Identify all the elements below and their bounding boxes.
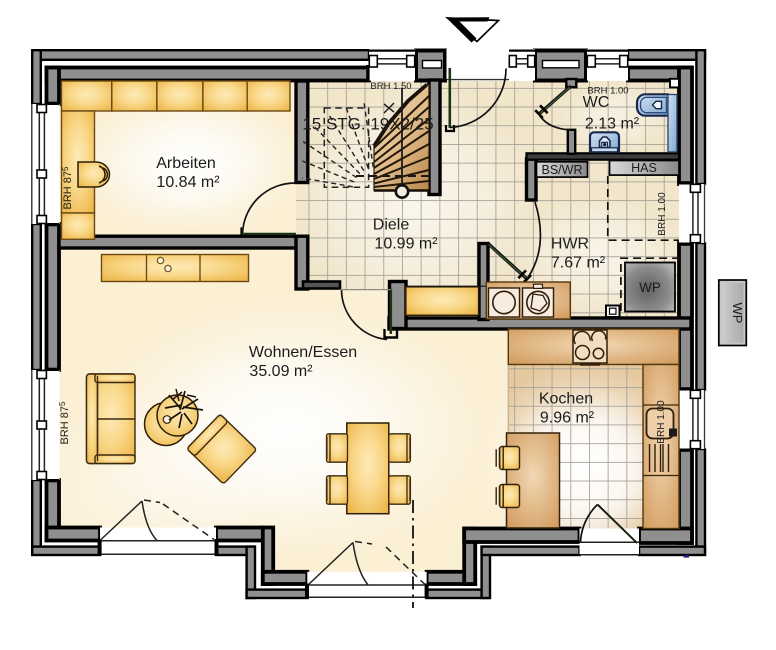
svg-text:15 STG. 19X2/25: 15 STG. 19X2/25	[302, 115, 433, 134]
svg-text:HAS: HAS	[631, 161, 657, 175]
svg-text:10.99 m²: 10.99 m²	[374, 236, 438, 253]
svg-text:WP: WP	[730, 303, 745, 324]
svg-text:7.67 m²: 7.67 m²	[551, 255, 606, 272]
svg-text:10.84 m²: 10.84 m²	[156, 174, 220, 191]
svg-text:BRH 1.00: BRH 1.00	[587, 86, 628, 97]
svg-text:9.96 m²: 9.96 m²	[540, 410, 595, 427]
svg-text:BRH 1.50: BRH 1.50	[370, 81, 411, 92]
svg-text:Diele: Diele	[373, 217, 410, 234]
svg-text:Arbeiten: Arbeiten	[156, 155, 216, 172]
svg-text:2.13 m²: 2.13 m²	[585, 116, 640, 133]
svg-text:BRH 1.00: BRH 1.00	[656, 400, 667, 444]
svg-text:BRH 875: BRH 875	[61, 166, 74, 210]
svg-text:HWR: HWR	[551, 236, 589, 253]
svg-text:BS/WR: BS/WR	[542, 163, 583, 177]
svg-text:WC: WC	[583, 94, 610, 111]
svg-text:BRH 875: BRH 875	[58, 401, 71, 445]
svg-text:WP: WP	[639, 280, 661, 295]
svg-text:Kochen: Kochen	[539, 391, 593, 408]
svg-text:35.09 m²: 35.09 m²	[249, 363, 313, 380]
svg-text:Wohnen/Essen: Wohnen/Essen	[249, 344, 357, 361]
svg-text:BRH 1.00: BRH 1.00	[657, 192, 668, 236]
